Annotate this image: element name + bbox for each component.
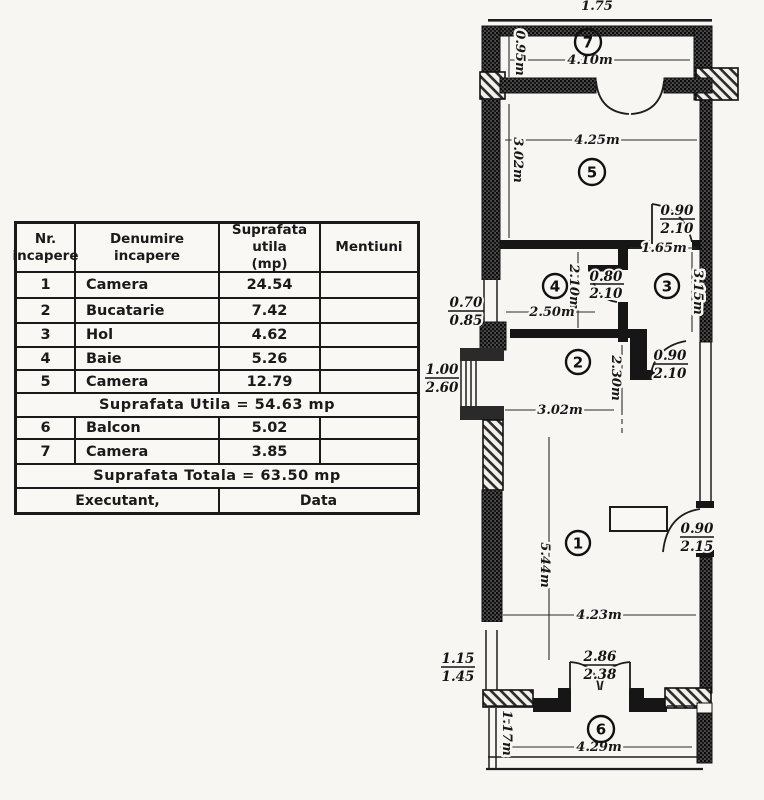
dim-label: 1.17m <box>499 710 514 755</box>
dim-label: 3.15m <box>690 269 705 314</box>
room-number-badge: 6 <box>588 716 614 742</box>
cell-nr: 2 <box>17 299 76 322</box>
cell-name: Camera <box>76 273 220 297</box>
door-size-label: 2.10 <box>653 366 687 382</box>
total-row: Suprafata Totala = 63.50 mp <box>17 463 417 487</box>
cell-nr: 3 <box>17 324 76 346</box>
window-size-label: 1.15 <box>442 651 475 667</box>
svg-text:3: 3 <box>662 278 672 296</box>
svg-text:2: 2 <box>573 354 583 372</box>
room-number-badge: 1 <box>566 531 590 555</box>
room-number-badge: 5 <box>579 159 605 185</box>
cell-name: Camera <box>76 371 220 392</box>
cell-mentiuni <box>321 440 417 463</box>
cell-mentiuni <box>321 371 417 392</box>
window-size-label: 0.85 <box>450 313 483 329</box>
header-denumire: Denumireincapere <box>76 224 220 271</box>
dimension-lines <box>425 30 714 752</box>
dim-label: 2.50m <box>528 305 574 320</box>
cell-nr: 6 <box>17 418 76 438</box>
cell-name: Hol <box>76 324 220 346</box>
subtotal-row: Suprafata Utila = 54.63 mp <box>17 392 417 416</box>
table-header-row: Nr.incapere Denumireincapere Suprafata u… <box>17 224 417 271</box>
footer-row: Executant, Data <box>17 487 417 512</box>
cell-mentiuni <box>321 299 417 322</box>
table-row: 4 Baie 5.26 <box>17 346 417 369</box>
cell-area: 5.26 <box>220 348 321 369</box>
header-nr: Nr.incapere <box>17 224 76 271</box>
svg-text:5: 5 <box>587 164 597 182</box>
table-row: 5 Camera 12.79 <box>17 369 417 392</box>
executant-label: Executant, <box>17 489 220 512</box>
window-size-label: 2.60 <box>425 380 459 396</box>
cell-area: 12.79 <box>220 371 321 392</box>
dim-label: 1.65m <box>641 241 686 256</box>
room-number-badge: 7 <box>575 29 601 55</box>
svg-text:1: 1 <box>573 535 583 553</box>
door-size-label: 0.90 <box>654 348 687 364</box>
cell-nr: 7 <box>17 440 76 463</box>
cell-area: 3.85 <box>220 440 321 463</box>
cell-nr: 1 <box>17 273 76 297</box>
cell-mentiuni <box>321 324 417 346</box>
window-size-label: 0.70 <box>450 295 483 311</box>
room-number-badge: 3 <box>655 274 679 298</box>
dim-label: 0.95m <box>512 30 527 75</box>
cell-nr: 5 <box>17 371 76 392</box>
cell-nr: 4 <box>17 348 76 369</box>
svg-text:4: 4 <box>550 278 560 296</box>
table-row: 3 Hol 4.62 <box>17 322 417 346</box>
cell-name: Balcon <box>76 418 220 438</box>
dim-label: 3.02m <box>510 137 525 182</box>
window-size-label: 1.45 <box>442 669 475 685</box>
header-mentiuni: Mentiuni <box>321 224 417 271</box>
svg-text:6: 6 <box>596 721 606 739</box>
room-number-badge: 4 <box>543 274 567 298</box>
door-size-label: 2.86 <box>583 649 617 665</box>
cell-name: Bucatarie <box>76 299 220 322</box>
dimension-labels: 1.75 4.10m 0.95m 4.25m 3.02m 1.65m 2.10m… <box>425 0 714 756</box>
area-table: Nr.incapere Denumireincapere Suprafata u… <box>14 221 420 515</box>
table-row: 6 Balcon 5.02 <box>17 416 417 438</box>
table-row: 2 Bucatarie 7.42 <box>17 297 417 322</box>
door-size-label: 0.90 <box>681 521 714 537</box>
header-suprafata: Suprafata utila(mp) <box>220 224 321 271</box>
data-label: Data <box>220 489 417 512</box>
fixture-box <box>610 507 667 531</box>
door-size-label: 2.10 <box>589 286 623 302</box>
dim-label: 4.23m <box>576 608 621 623</box>
door-size-label: 2.15 <box>680 539 714 555</box>
cell-area: 7.42 <box>220 299 321 322</box>
cell-name: Camera <box>76 440 220 463</box>
door-size-label: 0.80 <box>590 269 623 285</box>
cell-area: 4.62 <box>220 324 321 346</box>
table-row: 1 Camera 24.54 <box>17 271 417 297</box>
cell-area: 5.02 <box>220 418 321 438</box>
dim-label: 4.25m <box>574 133 619 148</box>
svg-text:7: 7 <box>583 34 593 52</box>
table-row: 7 Camera 3.85 <box>17 438 417 463</box>
dim-label: 2.10m <box>566 263 581 309</box>
cell-mentiuni <box>321 273 417 297</box>
dim-label: 3.02m <box>537 403 582 418</box>
cell-mentiuni <box>321 348 417 369</box>
dim-label: 2.30m <box>608 354 623 400</box>
door-size-label: 0.90 <box>661 203 694 219</box>
room-number-badge: 2 <box>566 350 590 374</box>
door-size-label: 2.10 <box>660 221 694 237</box>
cell-area: 24.54 <box>220 273 321 297</box>
cell-mentiuni <box>321 418 417 438</box>
dim-label: 5.44m <box>537 542 552 587</box>
window-size-label: 1.00 <box>426 362 459 378</box>
dim-label: 1.75 <box>581 0 613 14</box>
cell-name: Baie <box>76 348 220 369</box>
door-size-label: 2.38 <box>583 667 617 683</box>
